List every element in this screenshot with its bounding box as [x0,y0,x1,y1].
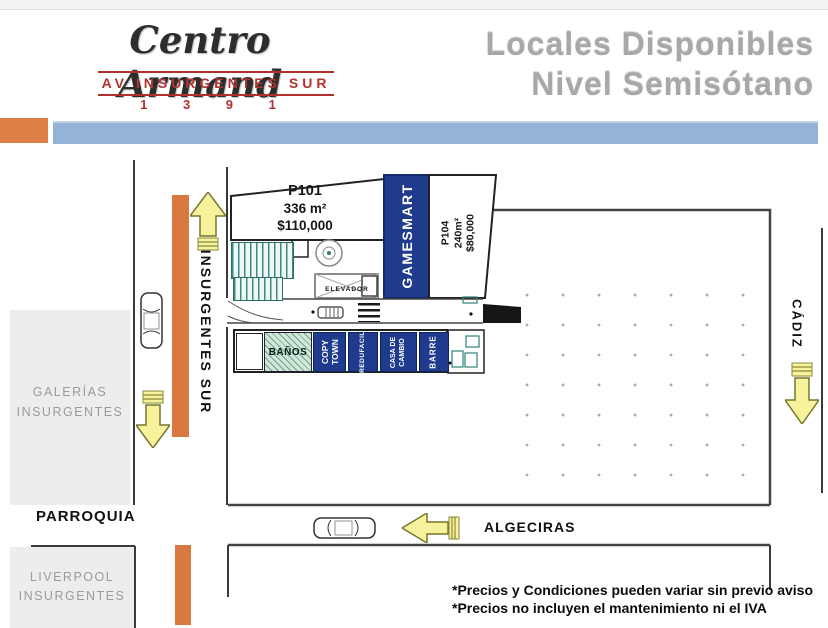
liverpool-label: LIVERPOOL INSURGENTES [10,568,134,606]
shop-copytown: COPY TOWN [313,332,346,372]
parroquia-label: PARROQUIA [36,508,136,525]
gamesmart-label: GAMESMART [399,183,415,288]
column-dot [311,310,314,313]
casadecambio-label: CASA DE CAMBIO [390,336,407,367]
unit-p101-label: P101 336 m² $110,000 [240,183,370,234]
p101-id: P101 [240,183,370,200]
shop-vacant [236,333,263,370]
shop-barre: BARRE [419,332,449,372]
parking-boundary [492,210,770,505]
algeciras-label: ALGECIRAS [484,519,575,535]
galerias-label: GALERÍAS INSURGENTES [10,382,130,422]
arrow-down-cadiz-icon [785,362,819,424]
median-strip-south [175,545,191,625]
ramp-block [483,304,521,323]
banos-label: BAÑOS [269,347,308,358]
driveway-entry-curves [228,301,283,323]
shop-casa-de-cambio: CASA DE CAMBIO [380,332,417,372]
crosswalk-stripes [358,303,380,322]
p104-price: $80,000 [464,178,477,288]
shuttle-icon [318,307,343,318]
arrow-up-icon [190,192,226,252]
copytown-label: COPY TOWN [320,339,340,365]
elevator-label: ELEVADOR [316,286,378,293]
footnote-line1: *Precios y Condiciones pueden variar sin… [452,582,813,598]
p104-id: P104 [439,178,452,288]
redufacil-label: REDUFACIL [358,331,368,373]
barre-label: BARRE [429,335,439,368]
shop-redufacil: REDUFACIL [348,332,378,372]
cadiz-label: CÁDIZ [790,299,805,349]
unit-p104-label: P104 240m² $80,000 [439,178,477,288]
arrow-down-icon [136,390,170,448]
footnote-line2: *Precios no incluyen el mantenimiento ni… [452,600,767,616]
shop-banos: BAÑOS [264,332,312,372]
arrow-left-icon [402,513,460,543]
stairs-hatch-upper [231,242,294,279]
spiral-center [327,251,331,255]
p101-wall-notch [292,240,308,257]
car-icon-insurgentes [139,292,165,350]
p101-area: 336 m² [240,200,370,217]
stairs-hatch-lower [233,277,283,301]
p101-price: $110,000 [240,217,370,234]
p104-area: 240m² [452,178,465,288]
median-strip-north [172,195,189,437]
insurgentes-sur-label: INSURGENTES SUR [198,250,214,415]
column-dot [469,312,472,315]
car-icon-algeciras [313,516,377,540]
flyer-page: Centro Armand AV INSURGENTES SUR 1 3 9 1… [0,0,828,628]
